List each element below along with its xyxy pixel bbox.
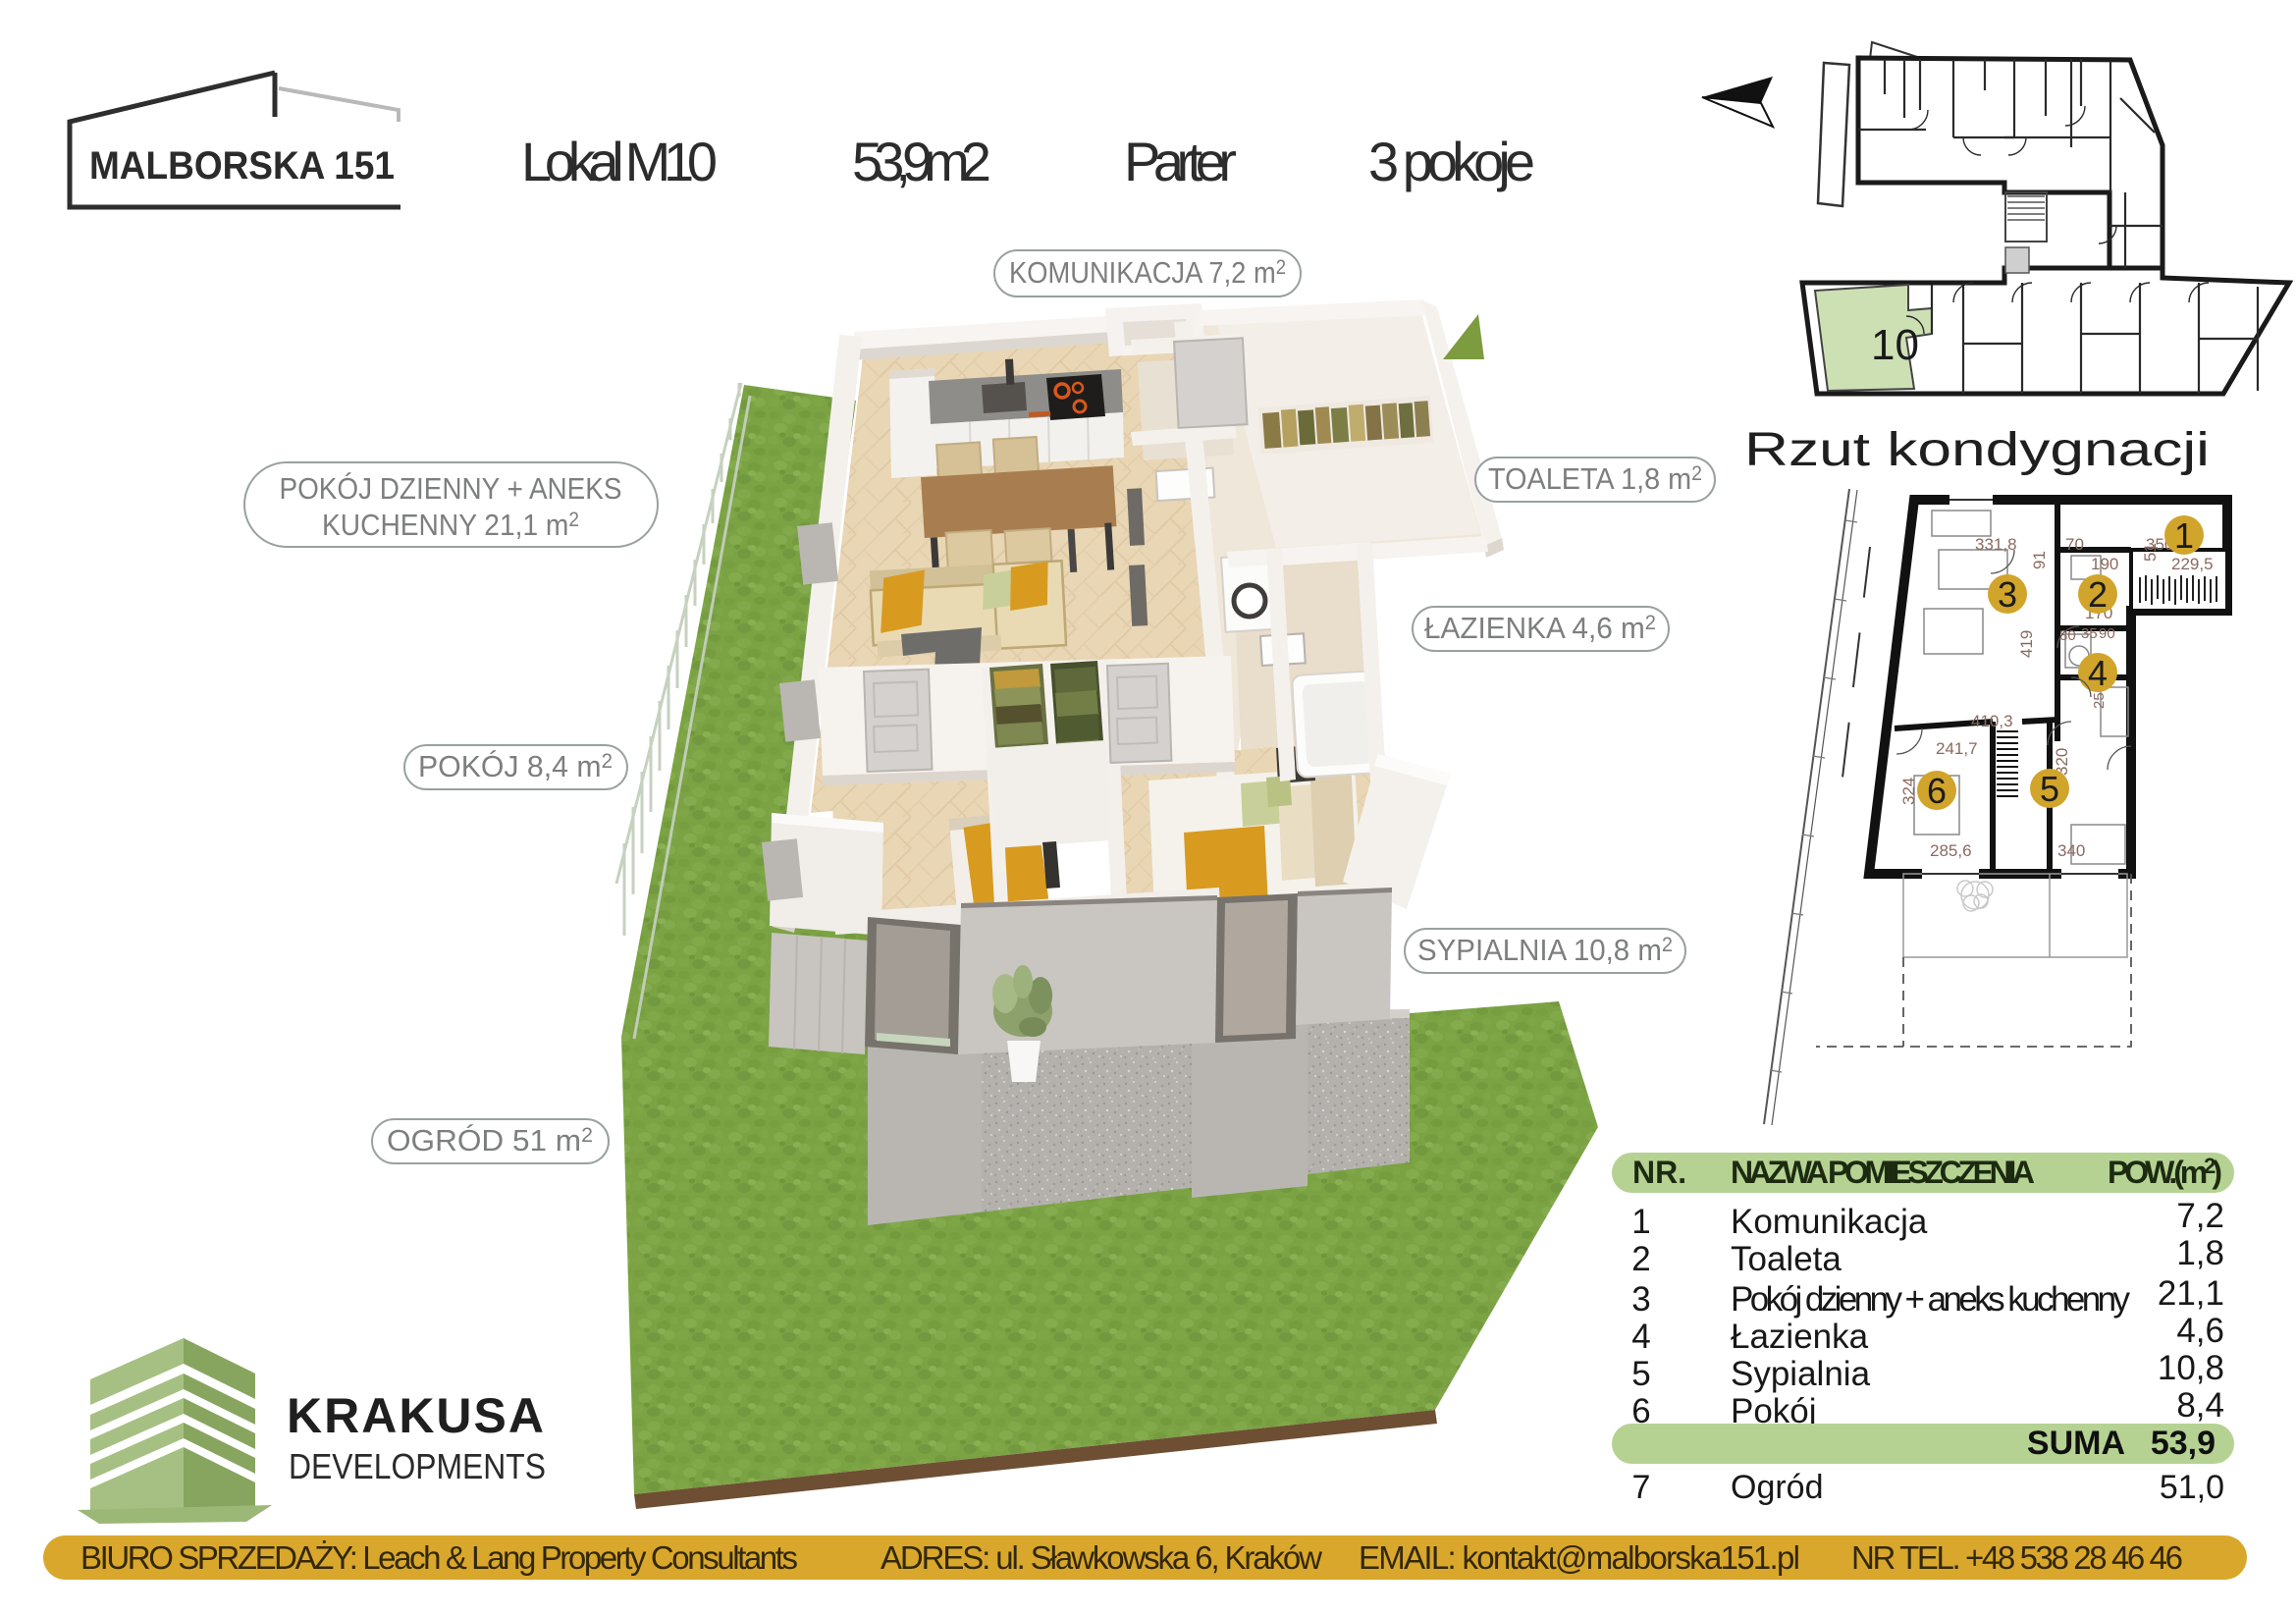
svg-text:2: 2 <box>1631 1240 1650 1278</box>
svg-text:5: 5 <box>2040 769 2059 809</box>
svg-text:MALBORSKA 151: MALBORSKA 151 <box>89 144 395 188</box>
svg-text:OGRÓD 51 m2: OGRÓD 51 m2 <box>387 1123 593 1158</box>
svg-text:KUCHENNY 21,1 m2: KUCHENNY 21,1 m2 <box>322 508 579 542</box>
svg-text:70: 70 <box>2065 535 2084 554</box>
svg-text:DEVELOPMENTS: DEVELOPMENTS <box>289 1446 546 1486</box>
svg-text:POW.(m2): POW.(m2) <box>2108 1154 2222 1190</box>
svg-text:Sypialnia: Sypialnia <box>1731 1355 1871 1393</box>
svg-text:340: 340 <box>2057 841 2085 860</box>
svg-text:TOALETA 1,8 m2: TOALETA 1,8 m2 <box>1488 461 1702 496</box>
svg-text:ŁAZIENKA 4,6 m2: ŁAZIENKA 4,6 m2 <box>1424 611 1656 645</box>
svg-text:NR TEL. +48 538 28 46 46: NR TEL. +48 538 28 46 46 <box>1851 1539 2183 1576</box>
svg-text:91: 91 <box>2030 551 2049 569</box>
svg-text:Lokal M10: Lokal M10 <box>521 131 718 192</box>
svg-text:SYPIALNIA 10,8 m2: SYPIALNIA 10,8 m2 <box>1417 933 1673 967</box>
svg-text:KRAKUSA: KRAKUSA <box>287 1388 546 1443</box>
svg-text:90: 90 <box>2099 625 2115 642</box>
svg-text:331,8: 331,8 <box>1975 535 2017 554</box>
svg-text:1,8: 1,8 <box>2176 1234 2224 1272</box>
svg-text:4: 4 <box>1631 1318 1650 1356</box>
svg-text:4: 4 <box>2088 653 2108 693</box>
svg-text:190: 190 <box>2091 555 2118 573</box>
svg-text:1: 1 <box>1631 1203 1650 1241</box>
svg-text:229,5: 229,5 <box>2171 555 2214 573</box>
svg-text:35: 35 <box>2081 625 2098 642</box>
svg-text:NAZWA POMIESZCZENIA: NAZWA POMIESZCZENIA <box>1731 1155 2035 1190</box>
svg-text:POKÓJ 8,4 m2: POKÓJ 8,4 m2 <box>418 749 613 783</box>
svg-text:285,6: 285,6 <box>1930 841 1972 860</box>
svg-text:EMAIL: kontakt@malborska151.pl: EMAIL: kontakt@malborska151.pl <box>1359 1539 1800 1576</box>
svg-text:8,4: 8,4 <box>2176 1386 2224 1425</box>
svg-text:SUMA: SUMA <box>2027 1425 2125 1462</box>
svg-text:10: 10 <box>1871 321 1919 369</box>
svg-text:NR.: NR. <box>1632 1155 1686 1190</box>
svg-text:10,8: 10,8 <box>2158 1349 2224 1387</box>
svg-text:53,9: 53,9 <box>2151 1425 2216 1462</box>
svg-text:Ogród: Ogród <box>1731 1469 1824 1506</box>
svg-text:6: 6 <box>1927 771 1947 811</box>
svg-text:4,6: 4,6 <box>2176 1312 2224 1350</box>
svg-text:5: 5 <box>1631 1355 1650 1393</box>
svg-text:ADRES: ul. Sławkowska 6, Krak: ADRES: ul. Sławkowska 6, Kraków <box>881 1539 1322 1576</box>
svg-text:410,3: 410,3 <box>1971 712 2013 730</box>
svg-text:Parter: Parter <box>1124 131 1237 192</box>
svg-text:Łazienka: Łazienka <box>1731 1318 1869 1356</box>
svg-text:KOMUNIKACJA 7,2 m2: KOMUNIKACJA 7,2 m2 <box>1009 255 1286 290</box>
svg-text:51,0: 51,0 <box>2160 1469 2224 1506</box>
svg-text:Rzut kondygnacji: Rzut kondygnacji <box>1744 424 2210 476</box>
svg-text:Komunikacja: Komunikacja <box>1731 1203 1928 1241</box>
svg-text:53,9m2: 53,9m2 <box>852 131 991 192</box>
svg-text:Toaleta: Toaleta <box>1731 1240 1842 1278</box>
svg-text:Pokój dzienny + aneks kuchenny: Pokój dzienny + aneks kuchenny <box>1731 1280 2131 1319</box>
svg-text:7: 7 <box>1632 1469 1651 1506</box>
svg-text:2: 2 <box>2088 574 2108 615</box>
svg-text:241,7: 241,7 <box>1936 739 1978 758</box>
svg-text:51: 51 <box>2141 543 2160 562</box>
svg-text:3: 3 <box>1998 574 2017 615</box>
svg-text:3 pokoje: 3 pokoje <box>1368 131 1535 192</box>
svg-text:324: 324 <box>1899 778 1918 805</box>
svg-text:419: 419 <box>2017 630 2036 658</box>
svg-text:21,1: 21,1 <box>2158 1274 2224 1313</box>
svg-text:3: 3 <box>1631 1280 1650 1319</box>
svg-text:BIURO SPRZEDAŻY: Leach & Lang: BIURO SPRZEDAŻY: Leach & Lang Property C… <box>80 1539 798 1576</box>
svg-text:1: 1 <box>2174 515 2194 556</box>
svg-text:POKÓJ DZIENNY + ANEKS: POKÓJ DZIENNY + ANEKS <box>280 471 622 506</box>
svg-text:7,2: 7,2 <box>2176 1197 2224 1235</box>
